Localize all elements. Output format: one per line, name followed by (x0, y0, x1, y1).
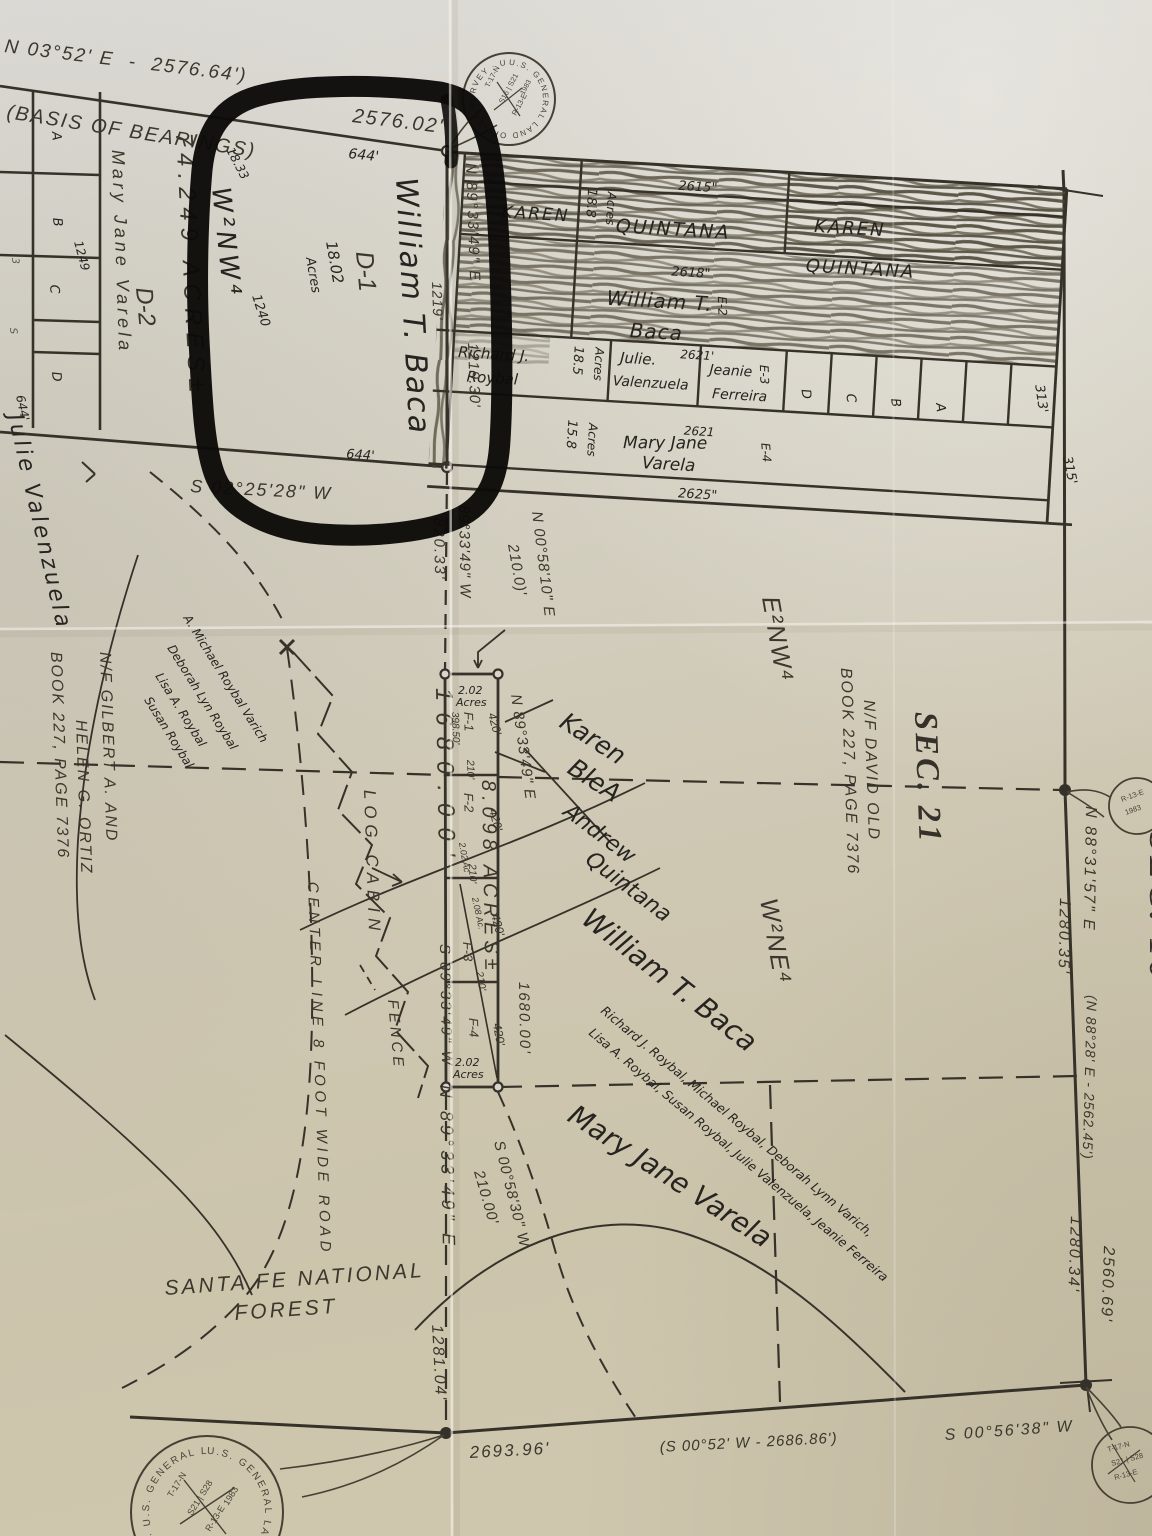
label-sec-21: SEC. 21 (907, 711, 948, 845)
tag-e2: E-2 (715, 296, 730, 316)
label-jeanie: Jeanie (706, 362, 753, 381)
area-18-5: 18.5 (569, 346, 586, 376)
measure-1219: 1219' (429, 282, 446, 322)
measure-2615: 2615" (678, 179, 718, 196)
dist-1219-30: 1219.30' (464, 343, 483, 409)
label-varela: Varela (641, 453, 696, 476)
dist-2560-69: 2560.69' (1097, 1245, 1117, 1323)
label-karen-left: KAREN (501, 202, 570, 226)
label-ferreira: Ferreira (712, 386, 768, 405)
f2-label: F-2 (461, 793, 477, 814)
area-18-5-acres: Acres (591, 346, 607, 381)
label-karen-right: KAREN (814, 216, 887, 241)
label-sec-16: SEC. 16 (1142, 832, 1152, 982)
grid-lot-d: D (48, 371, 64, 382)
bearing-n8831: N 88°31'57" E (1080, 806, 1099, 932)
f1-label: F-1 (461, 712, 477, 732)
measure-2618: 2618" (671, 265, 711, 282)
dist-1280-34: 1280.34' (1064, 1216, 1084, 1293)
f1-area-2: Acres (455, 696, 487, 709)
small-lot-d: D (798, 388, 814, 400)
plat-photo: KAREN 2615" QUINTANA KAREN QUINTANA 18.8… (0, 0, 1152, 1536)
lot-d2: D-2 (130, 286, 160, 327)
area-18-8: 18.8 (582, 188, 599, 218)
tick-210-2: 210' (466, 863, 479, 885)
small-lot-b: B (887, 398, 903, 409)
grid-lot-b: B (49, 217, 65, 227)
area-15-8-acres: Acres (584, 422, 600, 457)
small-lot-a: A (932, 401, 948, 413)
grid-lot-a: A (48, 130, 64, 141)
grid-mark-1: 3 (9, 257, 21, 264)
label-julie: Julie. (617, 348, 657, 368)
area-18-8-acres: Acres (603, 190, 619, 225)
f3-label: F-3 (460, 942, 476, 963)
survey-plat-map: KAREN 2615" QUINTANA KAREN QUINTANA 18.8… (0, 0, 1152, 1536)
measure-2625: 2625" (678, 486, 718, 503)
dist-644-south: 644' (346, 447, 375, 464)
dist-644-top: 644' (348, 146, 380, 165)
tag-e4: E-4 (758, 442, 774, 463)
dist-1280-35: 1280.35' (1055, 898, 1073, 975)
area-15-8: 15.8 (563, 419, 580, 449)
lot-d1: D-1 (350, 250, 381, 293)
tag-e3: E-3 (757, 365, 772, 385)
f4-label: F-4 (466, 1018, 482, 1038)
tick-210-1: 210' (464, 759, 477, 781)
measure-2621-r3: 2621' (680, 347, 715, 363)
label-baca: Baca (629, 318, 684, 345)
label-mary-jane: Mary Jane (623, 433, 707, 454)
dist-1680-east: 1680.00' (515, 982, 533, 1055)
